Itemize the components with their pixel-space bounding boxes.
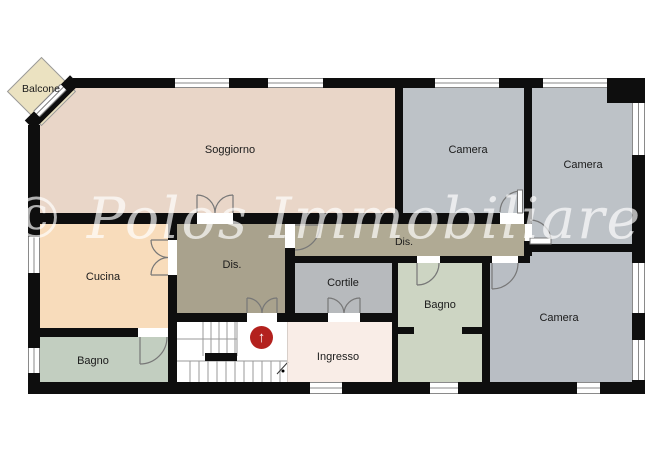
room-label-cucina: Cucina [86, 271, 120, 283]
door-soggiorno [197, 195, 233, 213]
room-label-ingresso: Ingresso [317, 351, 359, 363]
door-bagno-left [140, 337, 167, 364]
door-leaf [518, 190, 523, 213]
room-label-cortile: Cortile [327, 277, 359, 289]
door-cortile [328, 298, 360, 313]
stairs-up-marker: ↑ [250, 326, 273, 349]
room-label-soggiorno: Soggiorno [205, 144, 255, 156]
room-label-camera-bottom: Camera [539, 312, 578, 324]
room-label-bagno-right: Bagno [424, 299, 456, 311]
door-camera-bottom [492, 263, 518, 289]
room-label-bagno-left: Bagno [77, 355, 109, 367]
door-disimpegno-hall [247, 298, 277, 313]
doors-and-stairs-overlay [0, 0, 650, 459]
room-label-camera-top-right: Camera [563, 159, 602, 171]
stair-divider [205, 353, 237, 361]
room-label-balcone: Balcone [22, 83, 60, 95]
door-cucina [151, 240, 168, 275]
up-arrow-icon: ↑ [258, 329, 266, 346]
stair-treads-upper [177, 322, 237, 356]
room-label-disimpegno: Dis. [223, 259, 242, 271]
floorplan: © Polos Immobiliare ↑ Balcone Soggiorno … [0, 0, 650, 459]
room-label-disimpegno-corridor: Dis. [395, 236, 413, 248]
door-disimpegno-corridor [295, 225, 320, 250]
door-leaf [530, 238, 551, 244]
door-bagno-right [417, 263, 439, 285]
stair-cut-dot [282, 370, 285, 373]
room-label-camera-top-left: Camera [448, 144, 487, 156]
stair-treads-lower [177, 361, 287, 382]
